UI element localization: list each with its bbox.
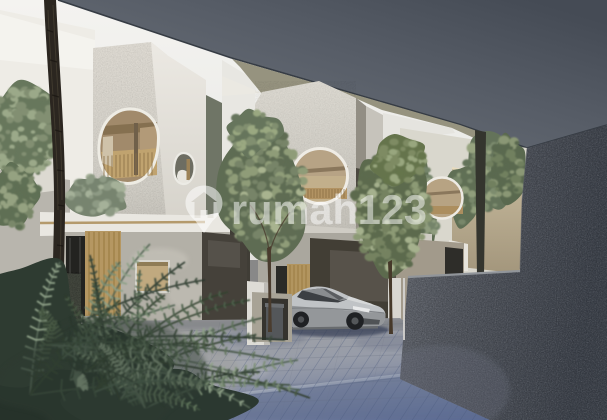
svg-text:rumah123: rumah123 bbox=[231, 186, 427, 233]
